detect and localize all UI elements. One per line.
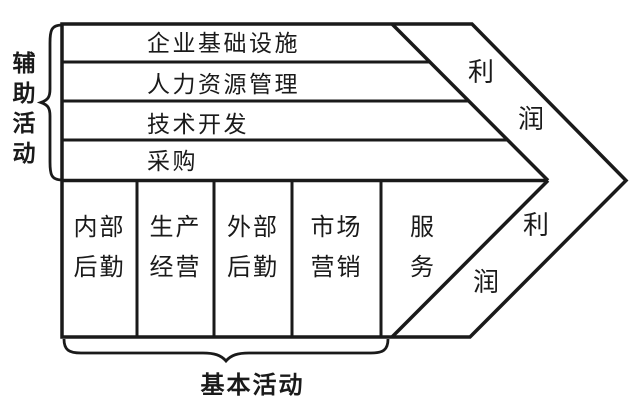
profit-bottom-char-2: 润 (472, 269, 500, 297)
support-row-infrastructure: 企业基础设施 (147, 31, 300, 57)
primary-activities-group-label: 基本活动 (180, 372, 325, 400)
primary-col-marketing-sales-line2: 营销 (292, 254, 381, 282)
primary-col-service-line1: 服 (399, 214, 447, 242)
support-activities-brace (41, 25, 62, 180)
primary-col-operations-line2: 经营 (137, 254, 214, 282)
primary-col-outbound-logistics-line2: 后勤 (214, 254, 292, 282)
support-row-hr-management: 人力资源管理 (147, 72, 300, 98)
profit-top-char-2: 润 (517, 106, 545, 134)
profit-bottom-char-1: 利 (522, 212, 550, 240)
diagram-line-art (0, 0, 640, 414)
support-activities-group-label: 辅助活动 (9, 51, 33, 171)
primary-col-operations-line1: 生产 (137, 214, 214, 242)
support-row-technology-development: 技术开发 (147, 112, 249, 138)
value-chain-diagram: 辅助活动 企业基础设施 人力资源管理 技术开发 采购 内部 后勤 生产 经营 外… (0, 0, 640, 414)
primary-col-marketing-sales-line1: 市场 (292, 214, 381, 242)
support-row-procurement: 采购 (147, 149, 198, 175)
primary-col-inbound-logistics-line2: 后勤 (62, 254, 137, 282)
primary-col-outbound-logistics-line1: 外部 (214, 214, 292, 242)
primary-col-inbound-logistics-line1: 内部 (62, 214, 137, 242)
primary-col-service-line2: 务 (399, 254, 447, 282)
primary-activities-brace (64, 339, 388, 361)
profit-top-char-1: 利 (467, 59, 495, 87)
